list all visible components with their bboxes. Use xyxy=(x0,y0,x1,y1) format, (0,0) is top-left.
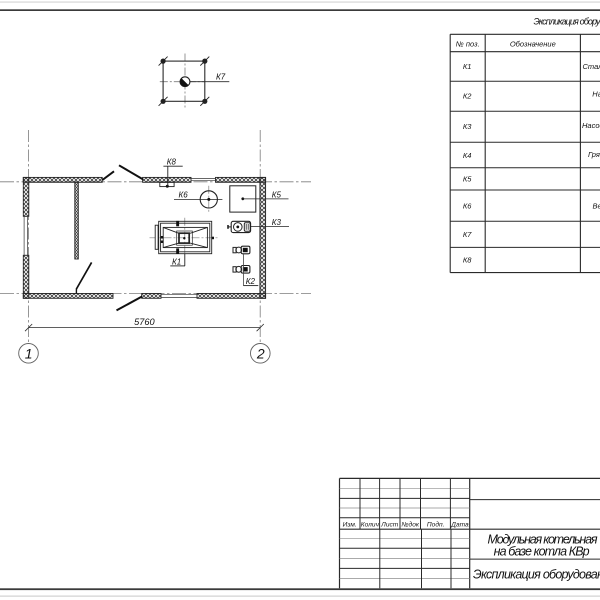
svg-text:К6: К6 xyxy=(179,190,189,199)
svg-text:1: 1 xyxy=(25,345,33,361)
svg-text:К3: К3 xyxy=(272,218,282,227)
svg-text:№док: №док xyxy=(401,521,419,529)
svg-text:5760: 5760 xyxy=(134,317,155,327)
svg-text:Грязевик: Грязевик xyxy=(588,150,600,159)
svg-text:Изм.: Изм. xyxy=(343,522,357,529)
svg-text:К1: К1 xyxy=(463,62,472,71)
svg-text:К6: К6 xyxy=(463,201,472,210)
svg-text:на базе котла КВр: на базе котла КВр xyxy=(494,545,590,559)
svg-text:Вентилятор: Вентилятор xyxy=(593,201,600,210)
svg-text:Обозначение: Обозначение xyxy=(510,39,556,48)
svg-text:К8: К8 xyxy=(463,256,472,265)
svg-text:№ поз.: № поз. xyxy=(456,39,480,48)
svg-text:Дата: Дата xyxy=(450,522,469,529)
svg-text:Колич: Колич xyxy=(361,522,380,529)
svg-text:К2: К2 xyxy=(463,92,472,101)
svg-text:К7: К7 xyxy=(463,230,472,239)
svg-text:К4: К4 xyxy=(463,151,472,160)
svg-text:Экспликация оборудования: Экспликация оборудования xyxy=(534,17,600,27)
svg-text:Насос: Насос xyxy=(592,90,600,99)
svg-text:2: 2 xyxy=(256,345,265,361)
svg-text:Экспликация оборудования: Экспликация оборудования xyxy=(473,568,600,582)
svg-text:Лист: Лист xyxy=(380,522,398,529)
svg-text:К3: К3 xyxy=(463,122,472,131)
svg-text:Стальной котел КВр: Стальной котел КВр xyxy=(583,62,600,71)
svg-text:Насос циркуляционный: Насос циркуляционный xyxy=(582,121,600,130)
svg-text:К5: К5 xyxy=(463,174,472,183)
svg-text:К2: К2 xyxy=(246,277,256,286)
svg-text:К7: К7 xyxy=(216,73,226,82)
svg-text:К8: К8 xyxy=(167,158,177,167)
svg-text:К1: К1 xyxy=(172,257,181,266)
svg-text:Подп.: Подп. xyxy=(427,521,445,529)
svg-text:К5: К5 xyxy=(272,190,282,199)
